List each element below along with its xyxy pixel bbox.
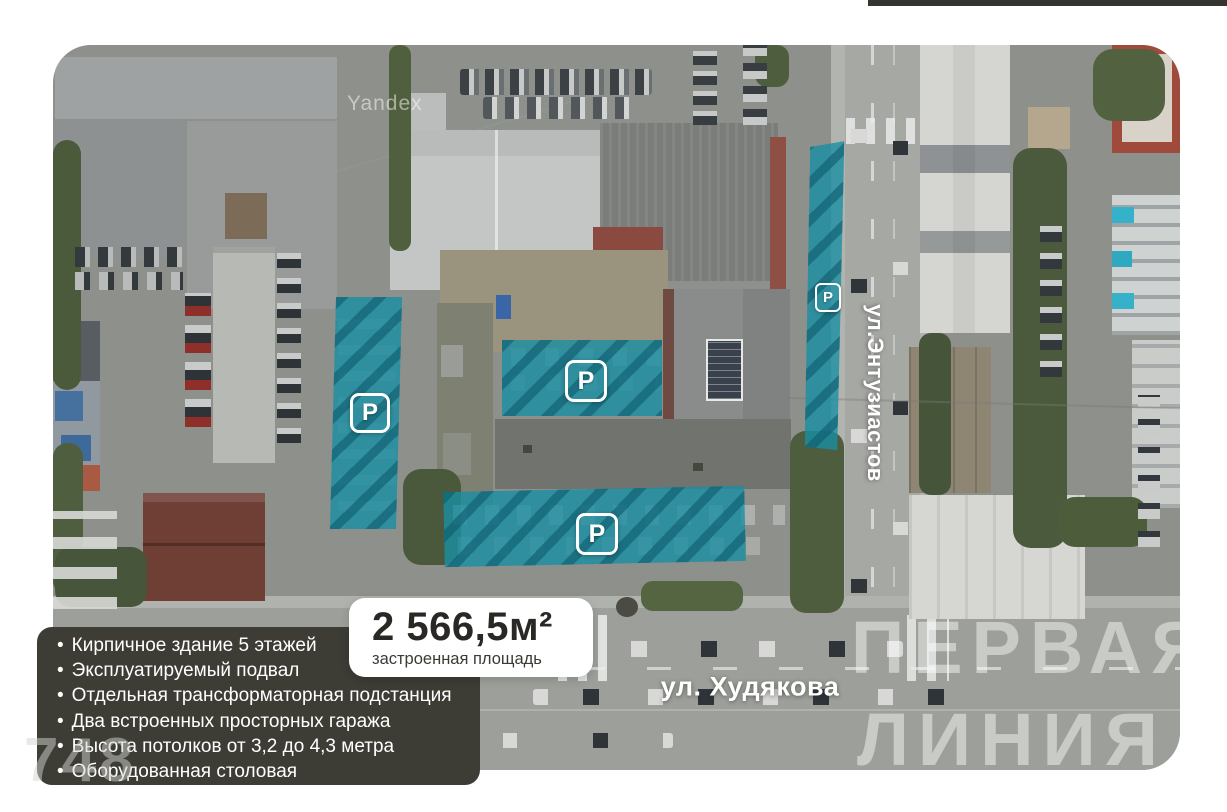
- map-feature: [495, 419, 791, 489]
- street-label-vertical: ул.Энтузиастов: [862, 304, 888, 482]
- map-feature: [593, 227, 663, 251]
- area-label: застроенная площадь: [372, 650, 593, 668]
- map-feature: [1112, 207, 1134, 223]
- map-feature: [641, 581, 743, 611]
- map-feature: [483, 97, 635, 119]
- map-feature: [693, 45, 717, 125]
- feature-item: •Отдельная трансформаторная подстанция: [53, 683, 464, 708]
- map-feature: [893, 105, 908, 535]
- feature-text: Кирпичное здание 5 этажей: [72, 633, 317, 658]
- map-feature: [75, 247, 183, 267]
- map-feature: [75, 272, 183, 290]
- page: P P P P ул.Энтузиастов ул. Худякова Yand…: [0, 0, 1227, 812]
- map-feature: [743, 45, 767, 125]
- bullet-icon: •: [57, 683, 64, 708]
- feature-text: Отдельная трансформаторная подстанция: [72, 683, 452, 708]
- bullet-icon: •: [57, 633, 64, 658]
- map-feature: [55, 391, 83, 421]
- map-feature: [225, 193, 267, 239]
- brand-watermark-line1: ПЕРВАЯ: [851, 611, 1180, 685]
- map-feature: [523, 445, 532, 453]
- parking-badge: P: [565, 360, 607, 402]
- map-feature: [616, 597, 638, 617]
- map-feature: [708, 341, 741, 399]
- map-feature: [790, 431, 844, 613]
- map-feature: [1112, 251, 1132, 267]
- map-provider-watermark: Yandex: [347, 92, 423, 116]
- parking-icon: P: [578, 367, 595, 396]
- map-feature: [1138, 395, 1160, 547]
- map-feature: [213, 247, 275, 253]
- parking-icon: P: [589, 520, 606, 549]
- map-feature: [143, 493, 265, 502]
- map-feature: [53, 511, 117, 609]
- street-label-horizontal: ул. Худякова: [661, 672, 840, 703]
- map-feature: [693, 463, 703, 471]
- map-feature: [919, 333, 951, 495]
- map-feature: [185, 293, 211, 427]
- map-feature: [55, 57, 337, 119]
- parking-icon: P: [362, 399, 378, 427]
- brand-watermark-line2: ЛИНИЯ: [857, 703, 1167, 770]
- map-feature: [1112, 293, 1134, 309]
- map-feature: [143, 543, 265, 546]
- map-feature: [277, 247, 301, 443]
- parking-badge: P: [576, 513, 618, 555]
- map-feature: [953, 45, 975, 333]
- top-accent-bar: [868, 0, 1227, 6]
- map-feature: [460, 69, 652, 95]
- map-feature: [213, 247, 275, 463]
- bullet-icon: •: [57, 658, 64, 683]
- map-feature: [1028, 107, 1070, 149]
- map-feature: [143, 493, 265, 601]
- area-callout: 2 566,5м² застроенная площадь: [349, 598, 593, 677]
- map-feature: [1040, 221, 1062, 377]
- feature-text: Эксплуатируемый подвал: [72, 658, 300, 683]
- map-feature: [389, 45, 411, 251]
- map-feature: [441, 345, 463, 377]
- map-feature: [1059, 497, 1147, 547]
- parking-icon: P: [823, 289, 833, 306]
- map-feature: [1093, 49, 1165, 121]
- parking-badge: P: [350, 393, 390, 433]
- area-value: 2 566,5м²: [372, 606, 593, 649]
- parking-badge: P: [815, 283, 841, 312]
- number-watermark: 748: [24, 730, 136, 792]
- map-feature: [496, 295, 511, 319]
